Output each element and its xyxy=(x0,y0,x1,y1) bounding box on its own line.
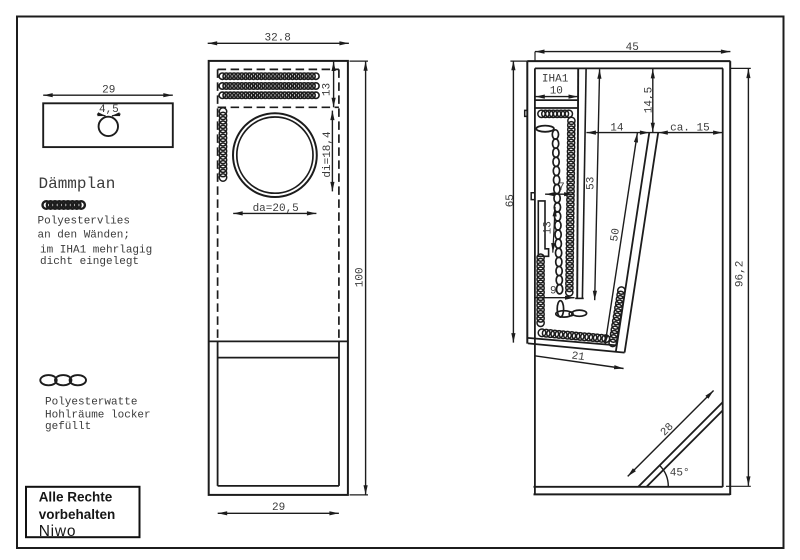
svg-text:29: 29 xyxy=(102,85,115,97)
svg-text:21: 21 xyxy=(571,350,586,364)
svg-text:IHA1: IHA1 xyxy=(542,74,569,86)
svg-text:dicht eingelegt: dicht eingelegt xyxy=(40,256,139,268)
svg-text:gefüllt: gefüllt xyxy=(45,421,91,433)
svg-text:Alle Rechte: Alle Rechte xyxy=(39,490,113,505)
svg-text:14,5: 14,5 xyxy=(644,87,656,113)
svg-text:vorbehalten: vorbehalten xyxy=(39,507,116,522)
svg-text:an den Wänden;: an den Wänden; xyxy=(38,229,130,241)
svg-text:Dämmplan: Dämmplan xyxy=(39,175,116,193)
svg-text:13: 13 xyxy=(322,83,334,96)
svg-text:96,2: 96,2 xyxy=(735,261,747,287)
svg-text:32.8: 32.8 xyxy=(264,33,290,45)
svg-text:Niwo: Niwo xyxy=(39,523,77,540)
svg-text:13: 13 xyxy=(543,221,555,234)
svg-text:100: 100 xyxy=(355,267,367,287)
svg-text:ca. 15: ca. 15 xyxy=(670,123,710,135)
svg-text:53: 53 xyxy=(585,177,597,190)
svg-text:Hohlräume locker: Hohlräume locker xyxy=(45,409,151,421)
svg-text:28: 28 xyxy=(659,421,677,439)
svg-text:Polyesterwatte: Polyesterwatte xyxy=(45,396,137,408)
svg-text:di=18,4: di=18,4 xyxy=(322,131,334,178)
svg-text:29: 29 xyxy=(272,502,285,514)
svg-text:10: 10 xyxy=(550,86,563,98)
svg-text:14: 14 xyxy=(610,123,624,135)
svg-text:7: 7 xyxy=(558,182,565,194)
svg-text:50: 50 xyxy=(609,228,623,243)
svg-text:im IHA1 mehrlagig: im IHA1 mehrlagig xyxy=(40,245,152,257)
svg-text:65: 65 xyxy=(505,194,517,207)
svg-text:Polyestervlies: Polyestervlies xyxy=(38,216,130,228)
svg-text:45: 45 xyxy=(626,42,639,54)
svg-text:45°: 45° xyxy=(670,467,690,479)
svg-text:9: 9 xyxy=(550,285,557,297)
